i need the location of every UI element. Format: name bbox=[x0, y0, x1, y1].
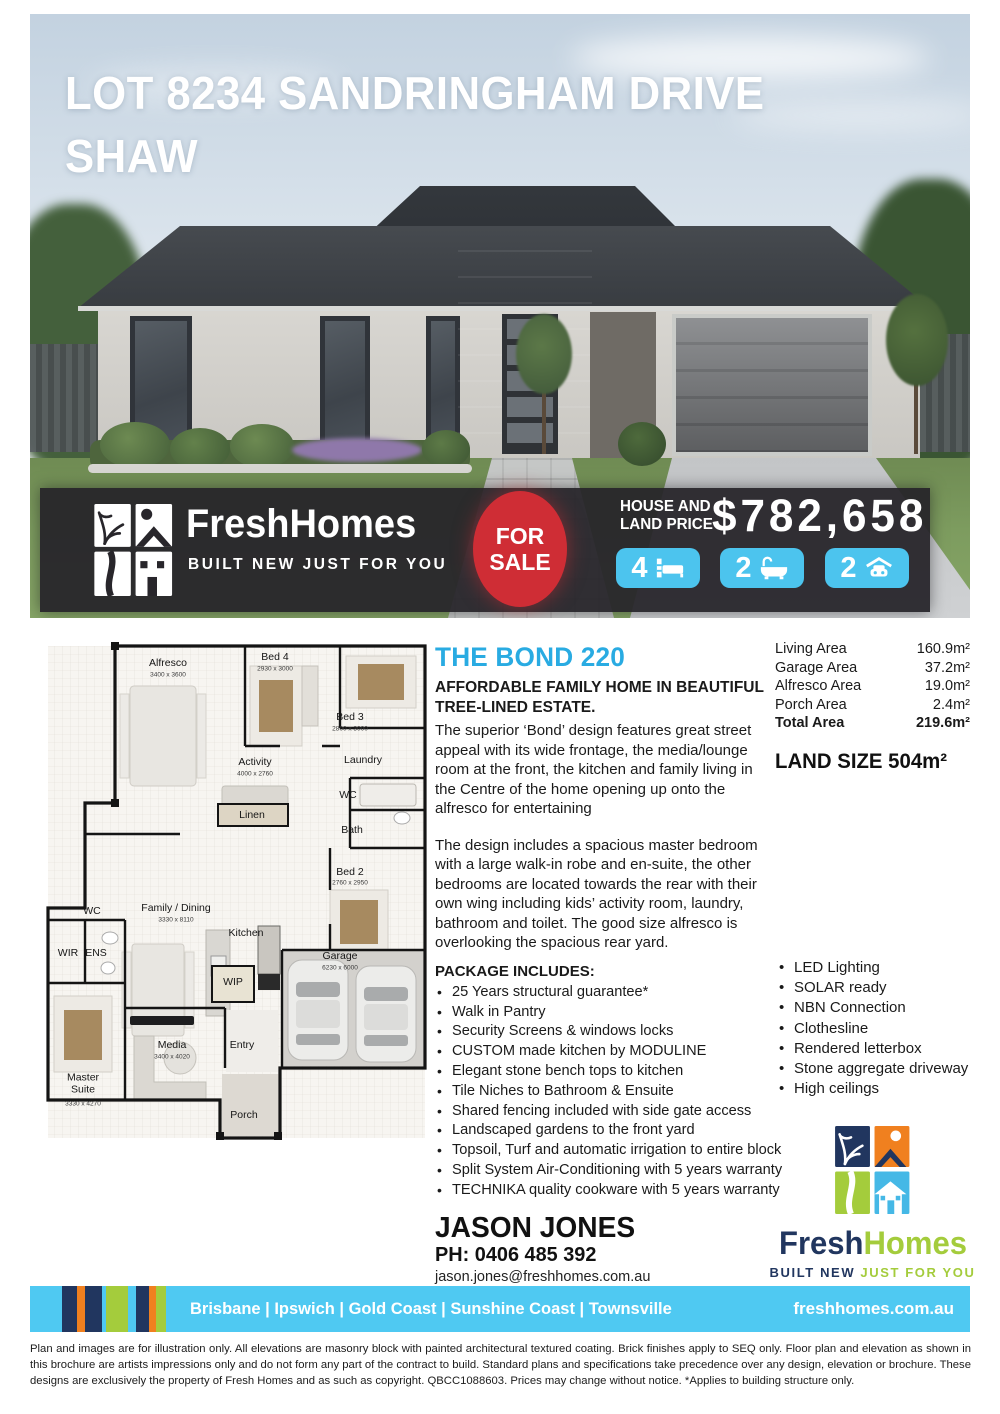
room-label: Bath bbox=[341, 824, 363, 836]
area-value: 37.2m² bbox=[925, 659, 970, 678]
area-table: Living Area 160.9m² Garage Area 37.2m² A… bbox=[775, 640, 970, 733]
hedge-ball bbox=[618, 422, 666, 466]
features-list: LED Lighting SOLAR ready NBN Connection … bbox=[777, 958, 968, 1099]
footer-stripe bbox=[128, 1286, 136, 1332]
bath-count: 2 bbox=[735, 552, 751, 585]
room-label: ENS bbox=[85, 947, 107, 959]
garage-count-pill: 2 bbox=[825, 548, 909, 588]
bed-icon bbox=[655, 556, 685, 580]
room-label: Porch bbox=[230, 1109, 257, 1121]
area-value: 219.6m² bbox=[916, 714, 970, 733]
agent-name: JASON JONES bbox=[435, 1213, 796, 1243]
garage-door bbox=[672, 314, 872, 456]
feature-item: Stone aggregate driveway bbox=[777, 1059, 968, 1079]
package-item: Security Screens & windows locks bbox=[435, 1022, 807, 1042]
area-value: 2.4m² bbox=[933, 696, 970, 715]
area-label: Living Area bbox=[775, 640, 847, 659]
feature-item: NBN Connection bbox=[777, 998, 968, 1018]
shrub bbox=[422, 430, 470, 468]
bath-count-pill: 2 bbox=[720, 548, 804, 588]
package-item: Topsoil, Turf and automatic irrigation t… bbox=[435, 1141, 807, 1161]
area-value: 19.0m² bbox=[925, 677, 970, 696]
package-list: 25 Years structural guarantee* Walk in P… bbox=[435, 983, 807, 1201]
price-banner: FreshHomes BUILT NEW JUST FOR YOU FOR SA… bbox=[40, 488, 930, 612]
shrub bbox=[230, 424, 294, 468]
package-item: Shared fencing included with side gate a… bbox=[435, 1102, 807, 1122]
area-label: Porch Area bbox=[775, 696, 847, 715]
garage-count: 2 bbox=[840, 552, 856, 585]
page-title-line2: SHAW bbox=[65, 125, 765, 188]
room-label: Laundry bbox=[344, 754, 382, 766]
footer-website-link[interactable]: freshhomes.com.au bbox=[793, 1286, 954, 1332]
specs-column: Living Area 160.9m² Garage Area 37.2m² A… bbox=[775, 640, 970, 1300]
room-dims: 2760 x 2950 bbox=[332, 880, 368, 887]
footer-stripe bbox=[156, 1286, 166, 1332]
room-label: Bed 3 bbox=[336, 711, 363, 723]
small-tree bbox=[886, 294, 948, 386]
area-row: Porch Area 2.4m² bbox=[775, 696, 970, 715]
shrub bbox=[100, 422, 170, 468]
package-item: Tile Niches to Bathroom & Ensuite bbox=[435, 1082, 807, 1102]
feature-item: High ceilings bbox=[777, 1079, 968, 1099]
area-value: 160.9m² bbox=[917, 640, 970, 659]
room-dims: 6230 x 6000 bbox=[322, 965, 358, 972]
freshhomes-logo-icon bbox=[92, 504, 176, 596]
area-row: Alfresco Area 19.0m² bbox=[775, 677, 970, 696]
bed-count: 4 bbox=[631, 552, 647, 585]
footer-stripe bbox=[149, 1286, 156, 1332]
room-dims: 2930 x 3000 bbox=[257, 666, 293, 673]
land-size: LAND SIZE 504m² bbox=[775, 750, 964, 774]
room-dims: 3330 x 4270 bbox=[65, 1101, 101, 1108]
brand-wordmark: FreshHomes bbox=[186, 502, 416, 547]
package-heading: PACKAGE INCLUDES: bbox=[435, 963, 807, 980]
room-label: WIP bbox=[223, 976, 243, 988]
room-label: Bed 2 bbox=[336, 866, 363, 878]
brand-fresh: Fresh bbox=[778, 1225, 863, 1261]
package-item: 25 Years structural guarantee* bbox=[435, 983, 807, 1003]
freshhomes-logo-icon bbox=[835, 1126, 911, 1214]
window bbox=[320, 316, 370, 452]
feature-item: SOLAR ready bbox=[777, 978, 968, 998]
room-label: WC bbox=[83, 905, 101, 917]
room-label: Entry bbox=[230, 1039, 255, 1051]
room-label: Garage bbox=[322, 950, 357, 962]
room-label: Kitchen bbox=[228, 927, 263, 939]
area-row: Garage Area 37.2m² bbox=[775, 659, 970, 678]
house-photo: LOT 8234 SANDRINGHAM DRIVE SHAW bbox=[30, 14, 970, 618]
description-paragraph-1: The superior ‘Bond’ design features grea… bbox=[435, 721, 771, 819]
footer-stripe bbox=[106, 1286, 128, 1332]
area-label: Total Area bbox=[775, 714, 844, 733]
footer-stripe bbox=[85, 1286, 102, 1332]
room-dims: 3400 x 4020 bbox=[154, 1054, 190, 1061]
room-dims: 2800 x 3000 bbox=[332, 726, 368, 733]
freshhomes-logo: FreshHomes BUILT NEW JUST FOR YOU bbox=[768, 1126, 978, 1280]
for-sale-line2: SALE bbox=[489, 549, 550, 575]
design-name: THE BOND 220 bbox=[435, 642, 796, 673]
room-label: Family / Dining bbox=[141, 902, 210, 914]
area-label: Alfresco Area bbox=[775, 677, 861, 696]
agent-email[interactable]: jason.jones@freshhomes.com.au bbox=[435, 1268, 807, 1287]
agent-phone[interactable]: PH: 0406 485 392 bbox=[435, 1243, 796, 1268]
brochure-page: LOT 8234 SANDRINGHAM DRIVE SHAW bbox=[0, 0, 1000, 1414]
garage-icon bbox=[864, 556, 894, 580]
room-label: Master Suite bbox=[54, 1072, 112, 1095]
area-label: Garage Area bbox=[775, 659, 857, 678]
pebble-border bbox=[88, 464, 472, 473]
footer-stripe bbox=[77, 1286, 85, 1332]
footer-locations: Brisbane | Ipswich | Gold Coast | Sunshi… bbox=[190, 1286, 672, 1332]
room-dims: 3400 x 3600 bbox=[150, 672, 186, 679]
room-dims: 3330 x 8110 bbox=[158, 917, 193, 924]
brand-fresh: Fresh bbox=[186, 502, 289, 546]
room-label: WC bbox=[339, 789, 357, 801]
room-label: Linen bbox=[239, 809, 265, 821]
bed-count-pill: 4 bbox=[616, 548, 700, 588]
room-label: Alfresco bbox=[149, 657, 187, 669]
floor-plan: Alfresco 3400 x 3600 Bed 4 2930 x 3000 B… bbox=[30, 638, 430, 1166]
description-paragraph-2: The design includes a spacious master be… bbox=[435, 836, 771, 953]
design-subheading: AFFORDABLE FAMILY HOME IN BEAUTIFUL TREE… bbox=[435, 678, 767, 718]
package-item: CUSTOM made kitchen by MODULINE bbox=[435, 1042, 807, 1062]
cloud bbox=[730, 100, 970, 130]
footer-bar: Brisbane | Ipswich | Gold Coast | Sunshi… bbox=[30, 1286, 970, 1332]
for-sale-badge: FOR SALE bbox=[473, 491, 567, 607]
package-item: Elegant stone bench tops to kitchen bbox=[435, 1062, 807, 1082]
room-label: WIR bbox=[58, 947, 78, 959]
price-label: HOUSE AND LAND PRICE bbox=[620, 498, 713, 535]
description-column: THE BOND 220 AFFORDABLE FAMILY HOME IN B… bbox=[435, 642, 807, 1286]
footer-stripe bbox=[62, 1286, 77, 1332]
brand-tagline: BUILT NEW JUST FOR YOU bbox=[188, 556, 447, 574]
package-item: Walk in Pantry bbox=[435, 1003, 807, 1023]
page-title-line1: LOT 8234 SANDRINGHAM DRIVE bbox=[65, 62, 765, 125]
bath-icon bbox=[759, 556, 789, 580]
price-value: $782,658 bbox=[712, 490, 927, 542]
room-label: Media bbox=[158, 1039, 187, 1051]
brand-homes: Homes bbox=[863, 1225, 967, 1261]
brand-wordmark: FreshHomes bbox=[771, 1225, 975, 1262]
feature-item: Rendered letterbox bbox=[777, 1039, 968, 1059]
feature-item: Clothesline bbox=[777, 1019, 968, 1039]
brand-homes: Homes bbox=[289, 502, 416, 546]
area-row: Living Area 160.9m² bbox=[775, 640, 970, 659]
feature-item: LED Lighting bbox=[777, 958, 968, 978]
for-sale-line1: FOR bbox=[496, 523, 545, 549]
small-tree bbox=[516, 314, 572, 394]
footer-stripe bbox=[136, 1286, 149, 1332]
room-label: Bed 4 bbox=[261, 651, 288, 663]
contact-block: JASON JONES PH: 0406 485 392 jason.jones… bbox=[435, 1213, 807, 1287]
package-item: Split System Air-Conditioning with 5 yea… bbox=[435, 1161, 807, 1181]
page-title: LOT 8234 SANDRINGHAM DRIVE SHAW bbox=[65, 62, 765, 189]
room-label: Activity bbox=[238, 756, 271, 768]
package-item: TECHNIKA quality cookware with 5 years w… bbox=[435, 1181, 807, 1201]
room-dims: 4000 x 2760 bbox=[237, 771, 273, 778]
brand-tagline: BUILT NEW JUST FOR YOU bbox=[768, 1265, 978, 1280]
area-row-total: Total Area 219.6m² bbox=[775, 714, 970, 733]
flower-bed bbox=[292, 438, 422, 462]
disclaimer-text: Plan and images are for illustration onl… bbox=[30, 1341, 971, 1389]
package-item: Landscaped gardens to the front yard bbox=[435, 1121, 807, 1141]
